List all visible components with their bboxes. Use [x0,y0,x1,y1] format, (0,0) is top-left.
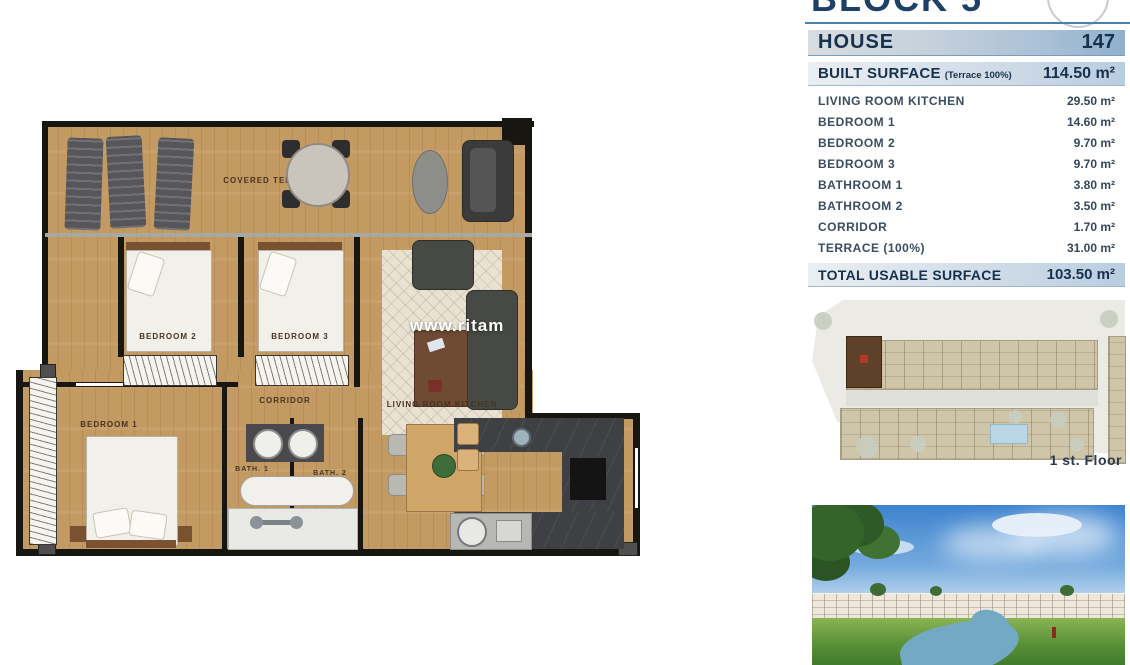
kitchen-window [635,448,638,508]
bathtub [240,476,354,506]
room-row: BEDROOM 1 14.60 m² [808,111,1125,132]
wall-left-terrace [42,121,48,373]
room-value: 31.00 m² [1067,241,1115,255]
kitchen-stool [457,423,479,445]
pool [990,424,1028,444]
room-value: 14.60 m² [1067,115,1115,129]
house-bar: HOUSE 147 [808,30,1125,56]
oven-burner [457,517,487,547]
table-plant [432,454,456,478]
room-row: BEDROOM 2 9.70 m² [808,132,1125,153]
bath1-label: BATH. 1 [220,466,284,473]
page: COVERED TERRACE BEDROOM 2 BEDROOM 3 CORR… [0,0,1130,665]
tree-icon [1100,310,1118,328]
total-value: 103.50 m² [1047,266,1115,283]
bath-sink-2 [288,429,318,459]
kitchen-sink-2 [496,520,522,542]
house-label: HOUSE [818,31,894,54]
bed-headboard [258,242,342,250]
wall-top [42,121,534,127]
room-row: TERRACE (100%) 31.00 m² [808,237,1125,258]
kitchen-inner-floor [484,452,562,512]
bedroom1-wardrobe [30,378,56,544]
wall-living-left [354,237,360,387]
tree-icon [814,312,832,330]
room-label: BATHROOM 2 [818,199,903,213]
wall-right [525,145,532,418]
room-row: LIVING ROOM KITCHEN 29.50 m² [808,90,1125,111]
room-value: 29.50 m² [1067,94,1115,108]
palm-tree [1060,585,1074,596]
room-row: BATHROOM 1 3.80 m² [808,174,1125,195]
corridor-label: CORRIDOR [240,396,330,405]
floor-label: 1 st. Floor [1012,452,1122,468]
bath-sink-1 [253,429,283,459]
total-label: TOTAL USABLE SURFACE [818,267,1001,283]
room-label: BATHROOM 1 [818,178,903,192]
sun-lounger [106,135,147,229]
room-label: TERRACE (100%) [818,241,925,255]
site-plan: 1 st. Floor [812,300,1125,475]
tree-icon [1008,410,1022,424]
sun-lounger [154,137,195,231]
floor-plan: COVERED TERRACE BEDROOM 2 BEDROOM 3 CORR… [14,118,646,572]
room-row: BATHROOM 2 3.50 m² [808,195,1125,216]
tree-icon [1050,412,1066,428]
room-label: BEDROOM 3 [818,157,895,171]
room-label: BEDROOM 2 [818,136,895,150]
cloud [992,513,1082,537]
tree-icon [1070,438,1084,452]
built-surface-label: BUILT SURFACE [818,65,941,82]
sun-lounger [64,137,103,230]
wall-left-lower [16,370,23,556]
kitchen-sink [512,428,531,447]
wall-bottom-kitchen [454,549,640,556]
built-surface-value: 114.50 m² [1043,65,1115,83]
total-bar: TOTAL USABLE SURFACE 103.50 m² [808,263,1125,287]
room-value: 9.70 m² [1074,136,1115,150]
watermark: www.ritam [410,316,504,336]
shower-area [228,508,358,550]
armchair [412,240,474,290]
wall-bath-right [358,418,363,550]
tree-icon [910,436,926,452]
terrace-round-table [286,143,350,207]
bedroom1-label: BEDROOM 1 [54,420,164,429]
wall-bedroom-divider [238,237,244,357]
render-photo [812,505,1125,665]
bed-headboard [126,242,210,250]
bedroom3-label: BEDROOM 3 [254,332,346,341]
room-value: 3.80 m² [1074,178,1115,192]
pillow [128,510,167,541]
tree-icon [856,436,878,458]
room-value: 3.50 m² [1074,199,1115,213]
unit-marker [860,355,868,363]
highlighted-unit [846,336,882,388]
title-underline [805,22,1130,24]
bedroom3-wardrobe [256,356,348,385]
site-road [846,390,1098,406]
apartment-row-upper [846,340,1098,390]
room-label: CORRIDOR [818,220,887,234]
shower-fixture [250,516,263,529]
kitchen-stool [457,449,479,471]
sofa [466,290,518,410]
room-row: BEDROOM 3 9.70 m² [808,153,1125,174]
terrace-sofa-cushion [470,148,496,212]
person-figure [1052,627,1056,638]
room-label: BEDROOM 1 [818,115,895,129]
terrace-pouf [412,150,448,214]
kitchen-appliance [570,458,606,500]
bedroom2-label: BEDROOM 2 [122,332,214,341]
table-decor [428,380,442,392]
room-label: LIVING ROOM KITCHEN [818,94,965,108]
bedroom2-wardrobe [124,356,216,385]
built-surface-bar: BUILT SURFACE (Terrace 100%) 114.50 m² [808,62,1125,86]
room-list: LIVING ROOM KITCHEN 29.50 m² BEDROOM 1 1… [808,90,1125,258]
living-room-kitchen-label: LIVING ROOM KITCHEN [372,400,512,409]
pillar [40,364,56,378]
built-surface-note: (Terrace 100%) [945,70,1012,81]
room-value: 1.70 m² [1074,220,1115,234]
palm-tree [930,586,942,596]
palm-tree [870,583,886,596]
nightstand [176,526,192,542]
room-value: 9.70 m² [1074,157,1115,171]
bed-headboard [86,540,176,548]
nightstand [70,526,86,542]
building-right [1108,336,1126,464]
shower-fixture [290,516,303,529]
room-row: CORRIDOR 1.70 m² [808,216,1125,237]
house-number: 147 [1082,31,1115,54]
